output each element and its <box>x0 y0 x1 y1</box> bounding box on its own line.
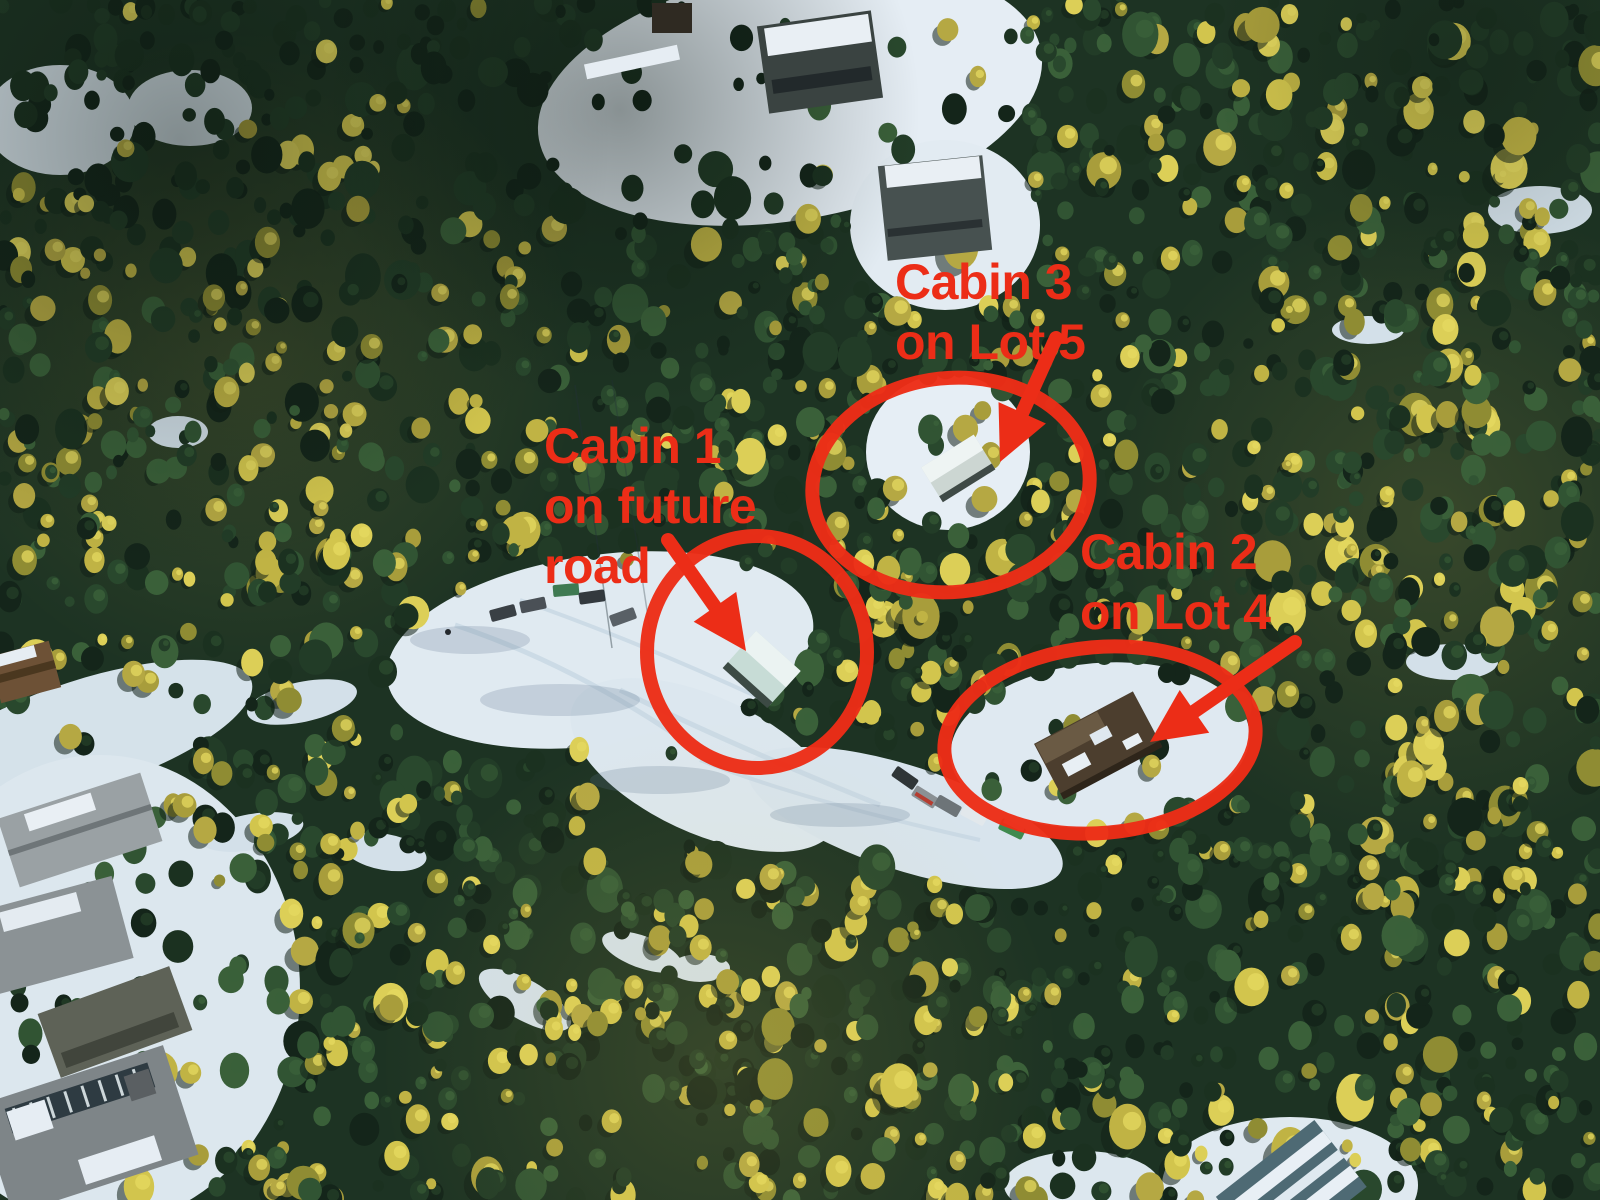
annotated-aerial-photo: Cabin 3 on Lot 5 Cabin 1 on future road … <box>0 0 1600 1200</box>
aerial-photo-canvas <box>0 0 1600 1200</box>
